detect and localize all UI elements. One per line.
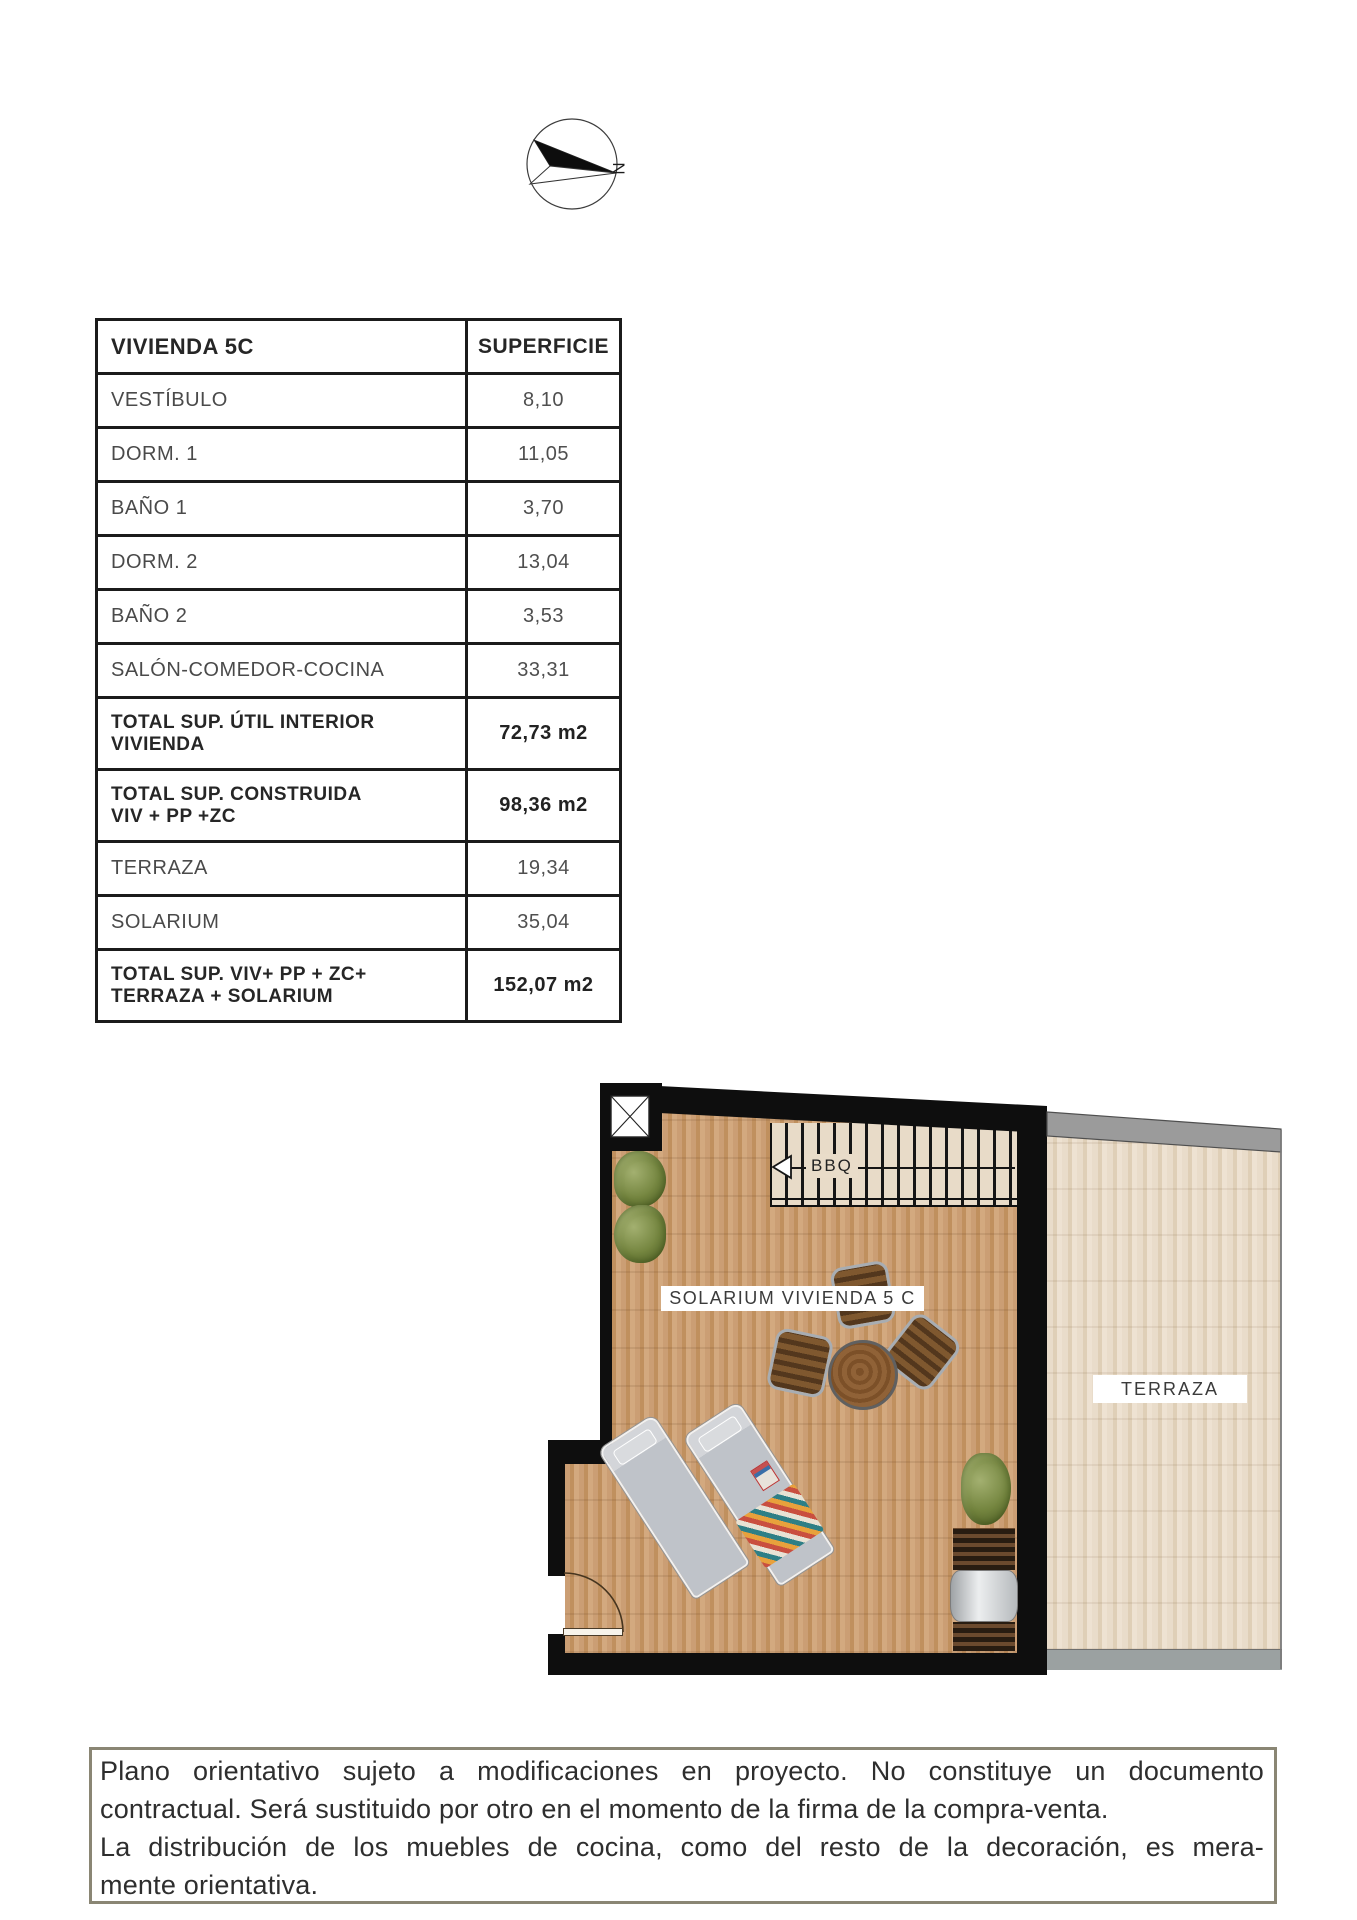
- solarium-room-label: SOLARIUM VIVIENDA 5 C: [661, 1286, 924, 1311]
- floor-plan: BBQ: [548, 1083, 1284, 1677]
- table-row: BAÑO 1 3,70: [98, 480, 619, 534]
- disclaimer-box: Plano orientativo sujeto a modificacione…: [89, 1747, 1277, 1904]
- total-label: TOTAL SUP. ÚTIL INTERIOR VIVIENDA: [98, 699, 465, 768]
- room-area: 33,31: [465, 645, 619, 696]
- table-row: VESTÍBULO 8,10: [98, 372, 619, 426]
- table-row: SALÓN-COMEDOR-COCINA 33,31: [98, 642, 619, 696]
- room-area: 3,70: [465, 483, 619, 534]
- disclaimer-line: La distribución de los muebles de cocina…: [100, 1828, 1264, 1866]
- table-total-row: TOTAL SUP. CONSTRUIDA VIV + PP +ZC 98,36…: [98, 768, 619, 840]
- terraza-top-band: [1047, 1112, 1281, 1152]
- table-row: BAÑO 2 3,53: [98, 588, 619, 642]
- room-label: DORM. 2: [98, 537, 465, 588]
- total-area: 98,36 m2: [465, 771, 619, 840]
- room-area: 3,53: [465, 591, 619, 642]
- disclaimer-line: mente orientativa.: [100, 1866, 1264, 1904]
- disclaimer-line: Plano orientativo sujeto a modificacione…: [100, 1752, 1264, 1790]
- total-area: 72,73 m2: [465, 699, 619, 768]
- room-area: 19,34: [465, 843, 619, 894]
- room-area: 11,05: [465, 429, 619, 480]
- door-leaf: [563, 1628, 623, 1636]
- table-header-row: VIVIENDA 5C SUPERFICIE: [98, 321, 619, 372]
- direction-arrow-icon: [773, 1156, 791, 1178]
- plant-icon: [614, 1205, 666, 1263]
- total-label: TOTAL SUP. CONSTRUIDA VIV + PP +ZC: [98, 771, 465, 840]
- terraza-room-label: TERRAZA: [1093, 1375, 1247, 1403]
- plan-sheet-page: N VIVIENDA 5C SUPERFICIE VESTÍBULO 8,10 …: [0, 0, 1357, 1920]
- surface-table: VIVIENDA 5C SUPERFICIE VESTÍBULO 8,10 DO…: [95, 318, 622, 1023]
- room-area: 13,04: [465, 537, 619, 588]
- room-area: 35,04: [465, 897, 619, 948]
- table-header-surface: SUPERFICIE: [465, 321, 619, 372]
- room-label: DORM. 1: [98, 429, 465, 480]
- total-area: 152,07 m2: [465, 951, 619, 1020]
- total-label: TOTAL SUP. VIV+ PP + ZC+ TERRAZA + SOLAR…: [98, 951, 465, 1020]
- wall-top: [600, 1083, 1047, 1133]
- north-label: N: [604, 151, 632, 187]
- table-header-dwelling: VIVIENDA 5C: [98, 321, 465, 372]
- room-label: TERRAZA: [98, 843, 465, 894]
- table-row: SOLARIUM 35,04: [98, 894, 619, 948]
- round-table: [828, 1340, 898, 1410]
- table-row: DORM. 2 13,04: [98, 534, 619, 588]
- table-total-row: TOTAL SUP. ÚTIL INTERIOR VIVIENDA 72,73 …: [98, 696, 619, 768]
- room-label: SOLARIUM: [98, 897, 465, 948]
- door-swing-arc-icon: [564, 1573, 623, 1632]
- table-total-row: TOTAL SUP. VIV+ PP + ZC+ TERRAZA + SOLAR…: [98, 948, 619, 1020]
- room-area: 8,10: [465, 375, 619, 426]
- room-label: BAÑO 2: [98, 591, 465, 642]
- table-row: TERRAZA 19,34: [98, 840, 619, 894]
- disclaimer-line: contractual. Será sustituido por otro en…: [100, 1790, 1264, 1828]
- bbq-counter-slats: [953, 1622, 1015, 1651]
- plant-icon: [614, 1151, 666, 1207]
- bbq-grill: [950, 1570, 1018, 1622]
- room-label: SALÓN-COMEDOR-COCINA: [98, 645, 465, 696]
- magazine: [750, 1460, 780, 1491]
- room-label: VESTÍBULO: [98, 375, 465, 426]
- bbq-counter-slats: [953, 1528, 1015, 1570]
- table-row: DORM. 1 11,05: [98, 426, 619, 480]
- room-label: BAÑO 1: [98, 483, 465, 534]
